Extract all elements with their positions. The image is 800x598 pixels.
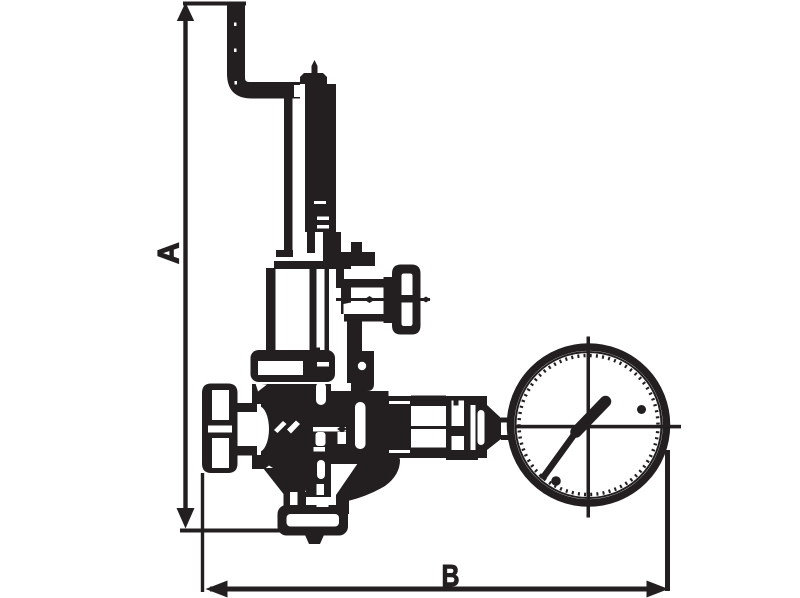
svg-text:B: B — [442, 558, 460, 593]
svg-text:A: A — [153, 242, 186, 264]
